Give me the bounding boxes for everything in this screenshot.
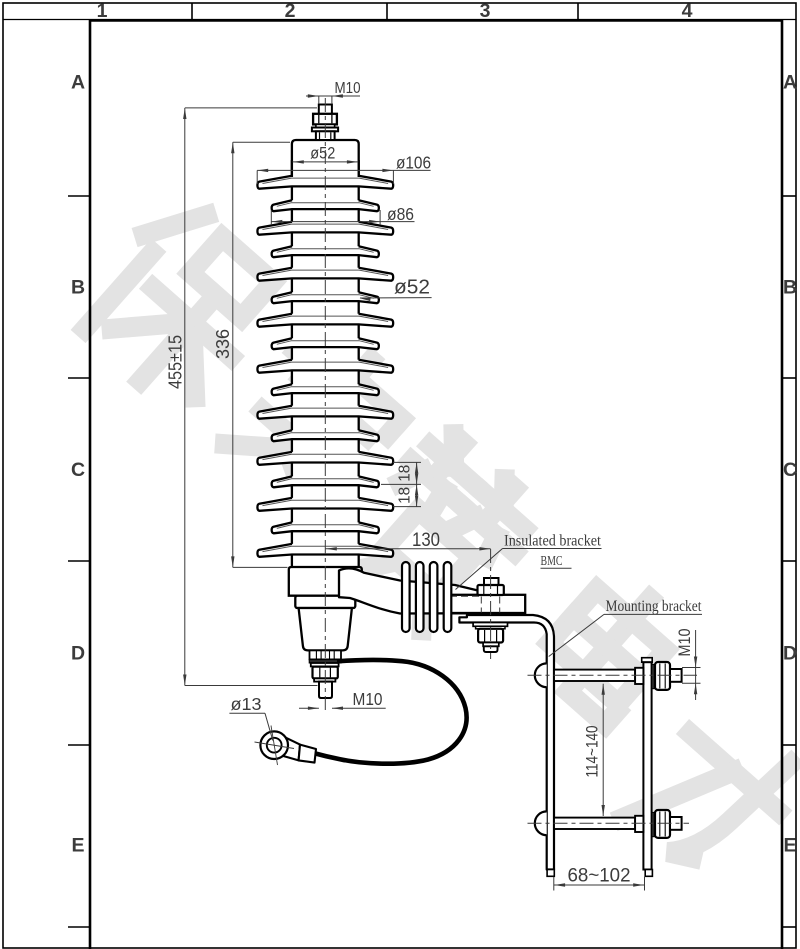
svg-text:3: 3 xyxy=(480,0,491,22)
svg-text:ø52: ø52 xyxy=(310,144,335,162)
svg-text:18: 18 xyxy=(397,465,414,482)
svg-text:2: 2 xyxy=(285,0,296,22)
svg-text:A: A xyxy=(783,72,797,94)
svg-text:68~102: 68~102 xyxy=(568,866,631,887)
svg-text:114~140: 114~140 xyxy=(583,726,602,778)
svg-text:4: 4 xyxy=(682,0,693,22)
svg-text:D: D xyxy=(71,643,85,665)
svg-text:18: 18 xyxy=(397,487,414,504)
svg-text:ø106: ø106 xyxy=(396,153,431,173)
svg-text:Insulated bracket: Insulated bracket xyxy=(504,533,602,550)
svg-text:B: B xyxy=(783,277,797,299)
svg-text:M10: M10 xyxy=(335,80,361,97)
svg-text:1: 1 xyxy=(97,0,108,22)
svg-text:D: D xyxy=(783,643,797,665)
svg-text:C: C xyxy=(783,459,797,481)
svg-text:E: E xyxy=(783,835,796,857)
svg-text:M10: M10 xyxy=(676,629,694,657)
svg-text:B: B xyxy=(71,277,85,299)
svg-text:336: 336 xyxy=(212,329,233,359)
svg-text:130: 130 xyxy=(412,530,440,551)
svg-text:A: A xyxy=(71,72,85,94)
svg-text:M10: M10 xyxy=(353,689,383,709)
svg-text:C: C xyxy=(71,459,85,481)
svg-text:BMC: BMC xyxy=(541,554,563,569)
svg-text:ø86: ø86 xyxy=(387,204,414,224)
svg-text:455±15: 455±15 xyxy=(165,335,186,389)
svg-text:ø52: ø52 xyxy=(394,277,430,299)
svg-text:E: E xyxy=(71,835,84,857)
svg-text:Mounting bracket: Mounting bracket xyxy=(606,598,703,615)
svg-text:ø13: ø13 xyxy=(231,694,262,714)
